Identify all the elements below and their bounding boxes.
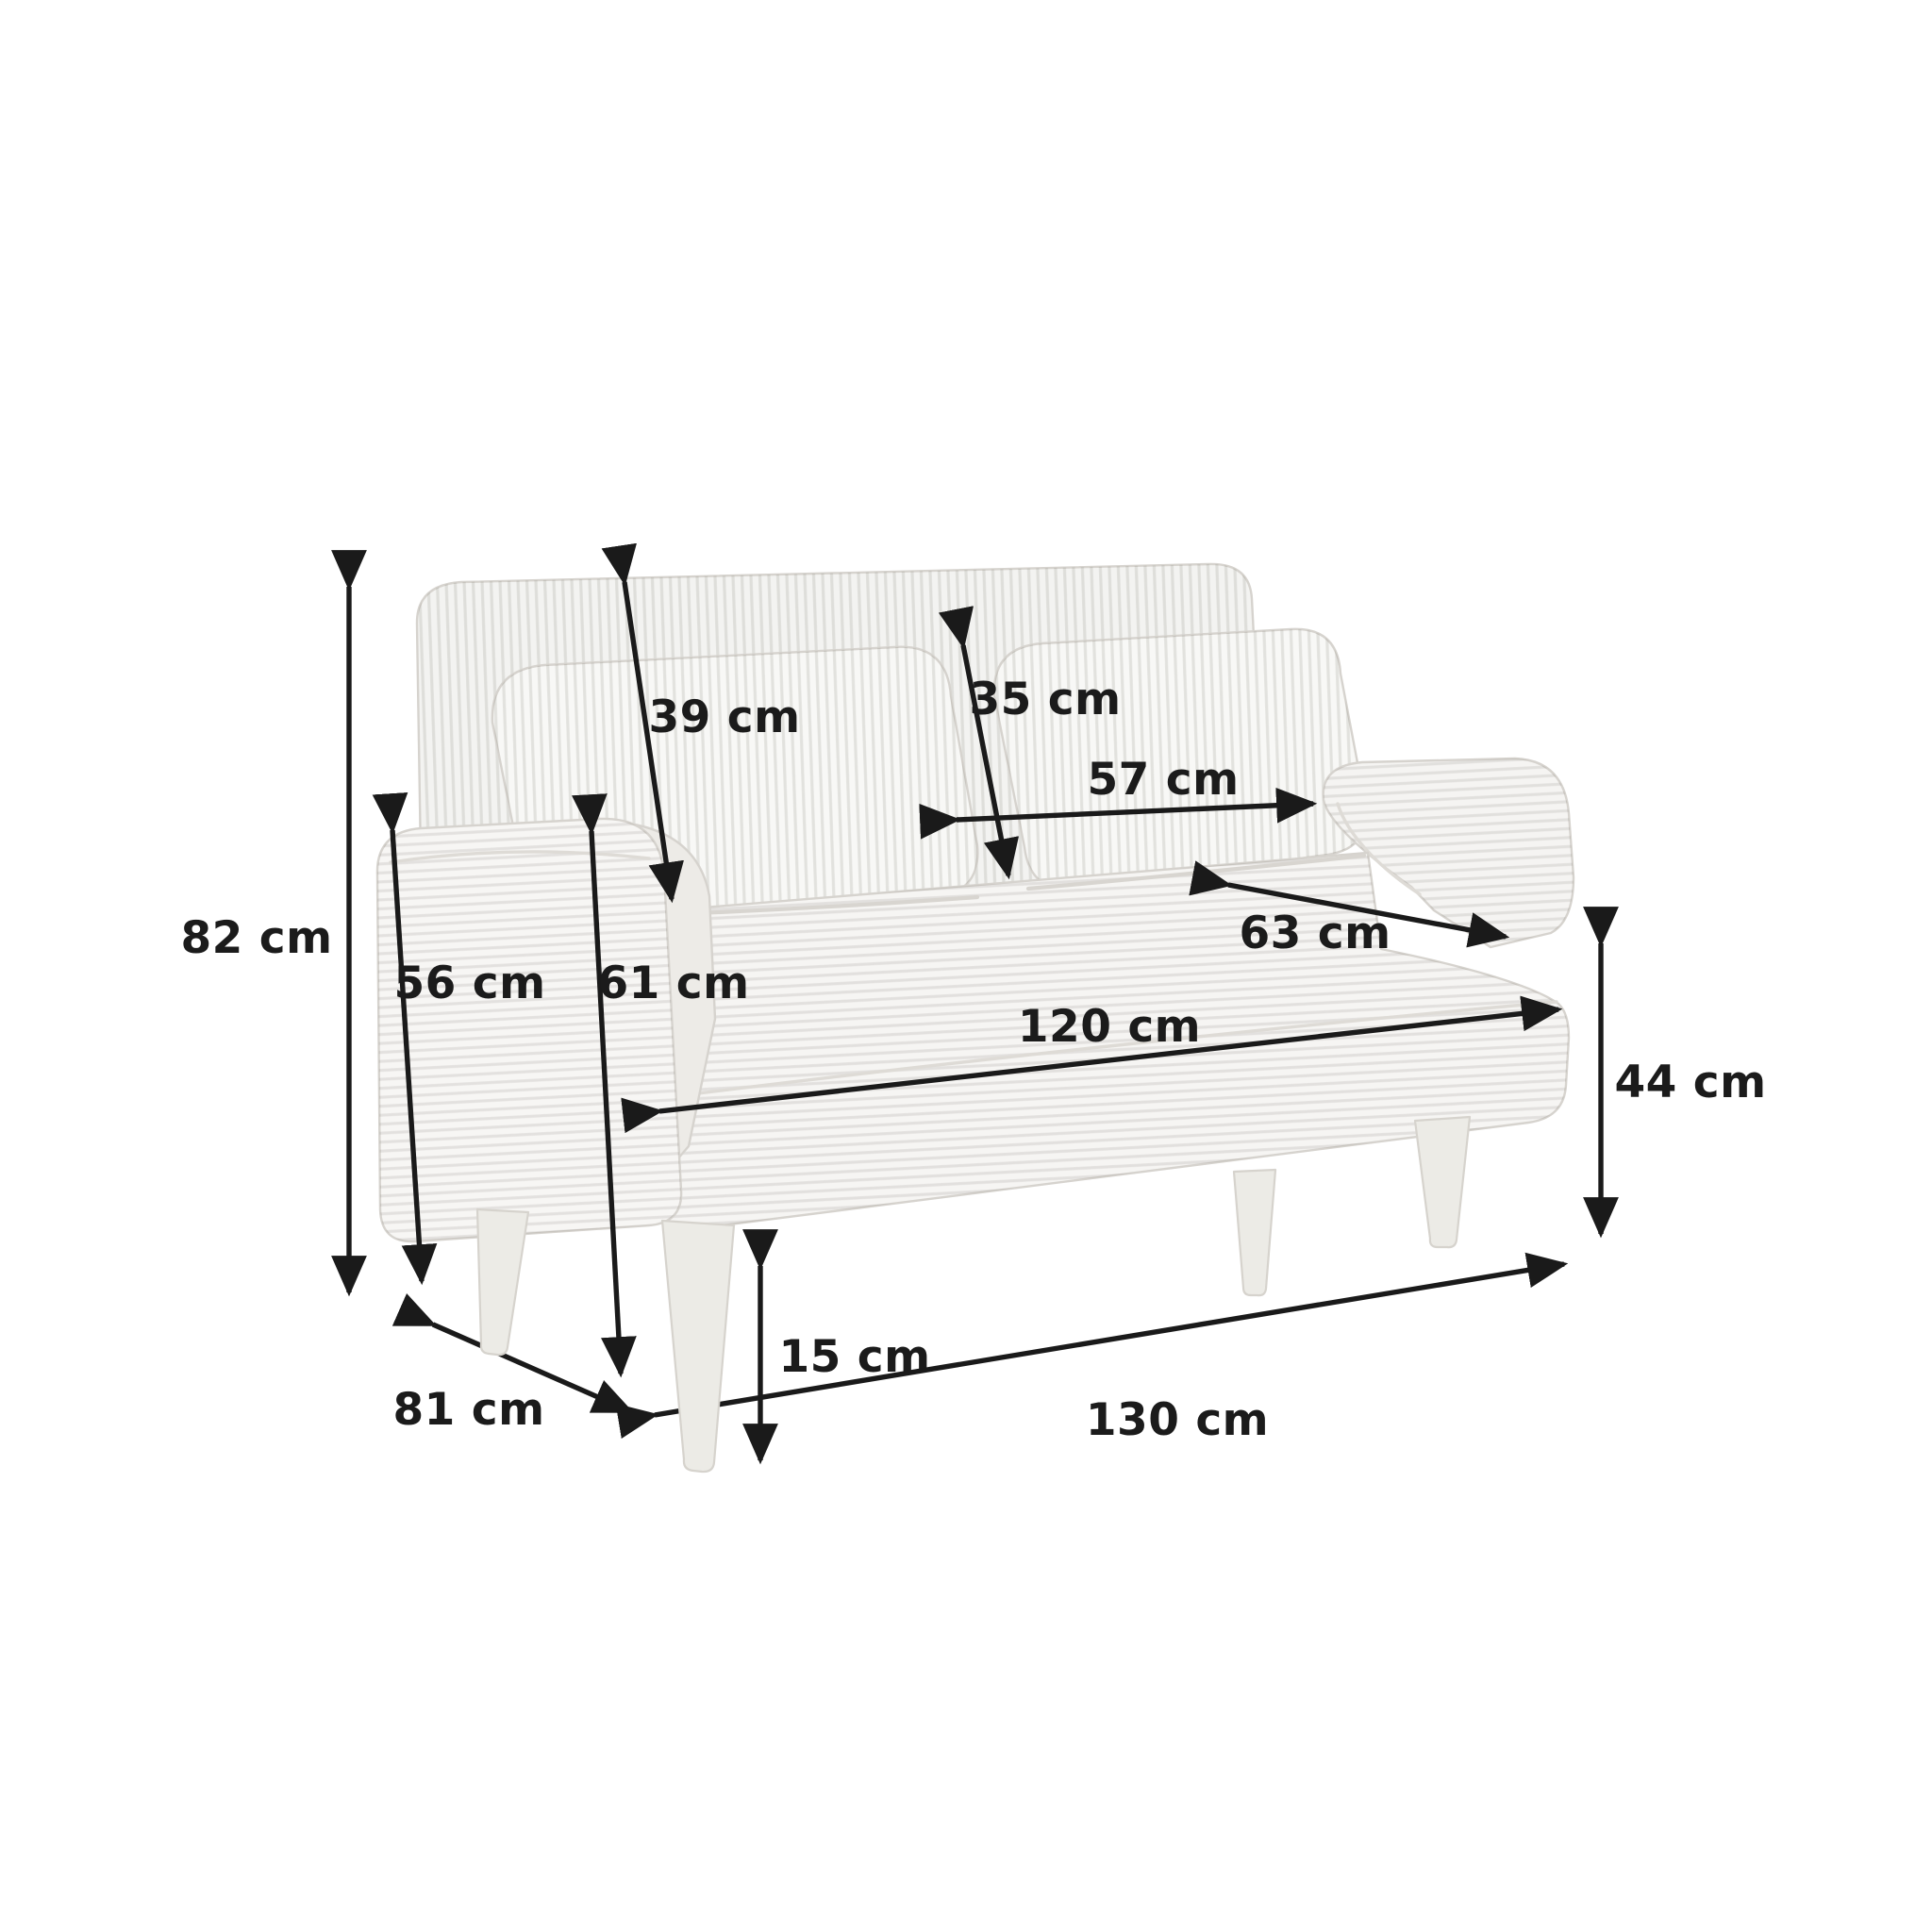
- sofa-leg-front-left: [662, 1221, 734, 1472]
- dimension-leg-height: 15 cm: [760, 1266, 931, 1460]
- armrest-height-label: 56 cm: [393, 958, 545, 1009]
- sofa-illustration: [377, 564, 1574, 1241]
- overall-width-label: 130 cm: [1086, 1394, 1269, 1446]
- sofa-leg-rear-left: [477, 1209, 528, 1355]
- sofa-dimension-diagram: 82 cm 56 cm 61 cm 39 cm 35 cm 57 cm 63 c…: [0, 0, 1932, 1932]
- dimension-seat-height: 44 cm: [1601, 943, 1767, 1234]
- dimension-overall-height: 82 cm: [180, 587, 349, 1292]
- back-cushion-width-label: 57 cm: [1087, 754, 1239, 806]
- backrest-height-label: 39 cm: [648, 691, 800, 743]
- sofa-leg-rear-right: [1234, 1170, 1275, 1295]
- overall-depth-label: 81 cm: [392, 1384, 544, 1436]
- seat-height-label: 44 cm: [1614, 1057, 1766, 1108]
- back-cushion-height-label: 35 cm: [969, 674, 1121, 725]
- seat-width-label: 120 cm: [1018, 1001, 1201, 1053]
- seat-front-floor-height-label: 61 cm: [597, 958, 749, 1009]
- dimension-overall-depth: 81 cm: [392, 1324, 630, 1436]
- diagram-canvas: 82 cm 56 cm 61 cm 39 cm 35 cm 57 cm 63 c…: [0, 0, 1932, 1932]
- sofa-leg-front-right: [1415, 1117, 1470, 1247]
- seat-depth-label: 63 cm: [1239, 908, 1391, 959]
- overall-height-label: 82 cm: [180, 912, 332, 964]
- sofa-armrest-left: [377, 819, 681, 1241]
